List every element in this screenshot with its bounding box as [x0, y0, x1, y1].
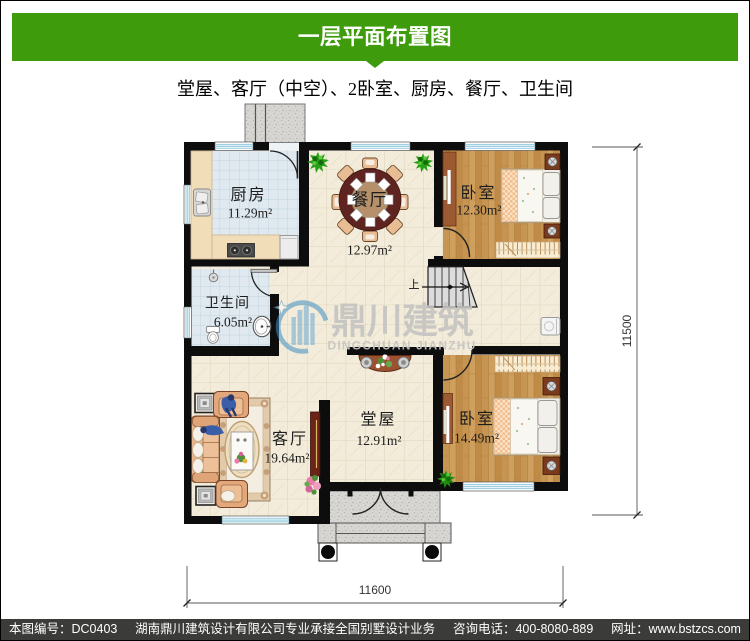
svg-text:客厅: 客厅: [272, 430, 308, 448]
svg-text:上: 上: [409, 278, 420, 291]
svg-text:鼎川建筑: 鼎川建筑: [331, 300, 474, 341]
svg-text:11500: 11500: [620, 314, 634, 347]
svg-text:堂屋: 堂屋: [360, 411, 396, 429]
svg-text:卧室: 卧室: [460, 184, 496, 202]
svg-text:12.30m²: 12.30m²: [457, 203, 502, 218]
svg-text:6.05m²: 6.05m²: [214, 315, 252, 330]
svg-text:11600: 11600: [359, 583, 392, 597]
svg-text:DINGCHUAN JIANZHU: DINGCHUAN JIANZHU: [327, 339, 476, 353]
svg-text:11.29m²: 11.29m²: [228, 206, 272, 221]
svg-text:厨房: 厨房: [230, 186, 266, 204]
svg-text:19.64m²: 19.64m²: [265, 451, 310, 466]
svg-text:12.91m²: 12.91m²: [357, 433, 402, 448]
svg-text:卧室: 卧室: [459, 410, 495, 428]
svg-text:卫生间: 卫生间: [205, 296, 250, 312]
svg-text:14.49m²: 14.49m²: [454, 431, 499, 446]
svg-text:12.97m²: 12.97m²: [347, 243, 392, 258]
svg-text:餐厅: 餐厅: [352, 191, 388, 210]
